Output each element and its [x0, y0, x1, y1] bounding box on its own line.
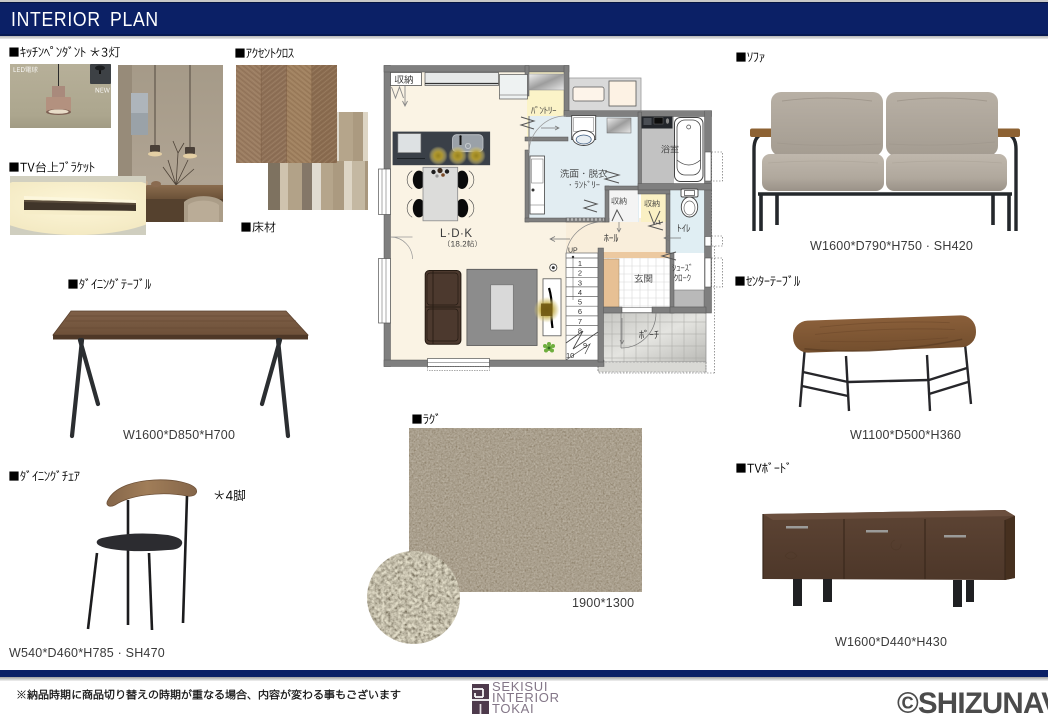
svg-text:UP: UP: [568, 248, 578, 255]
svg-text:2: 2: [578, 269, 582, 278]
svg-text:6: 6: [578, 307, 582, 316]
svg-text:L·D·K: L·D·K: [440, 228, 473, 240]
svg-text:10: 10: [566, 351, 574, 360]
svg-text:5: 5: [578, 298, 582, 307]
svg-text:4: 4: [578, 288, 582, 297]
svg-text:3: 3: [578, 278, 582, 287]
svg-text:1: 1: [578, 259, 582, 268]
svg-text:9: 9: [583, 341, 587, 350]
svg-text:7: 7: [578, 317, 582, 326]
